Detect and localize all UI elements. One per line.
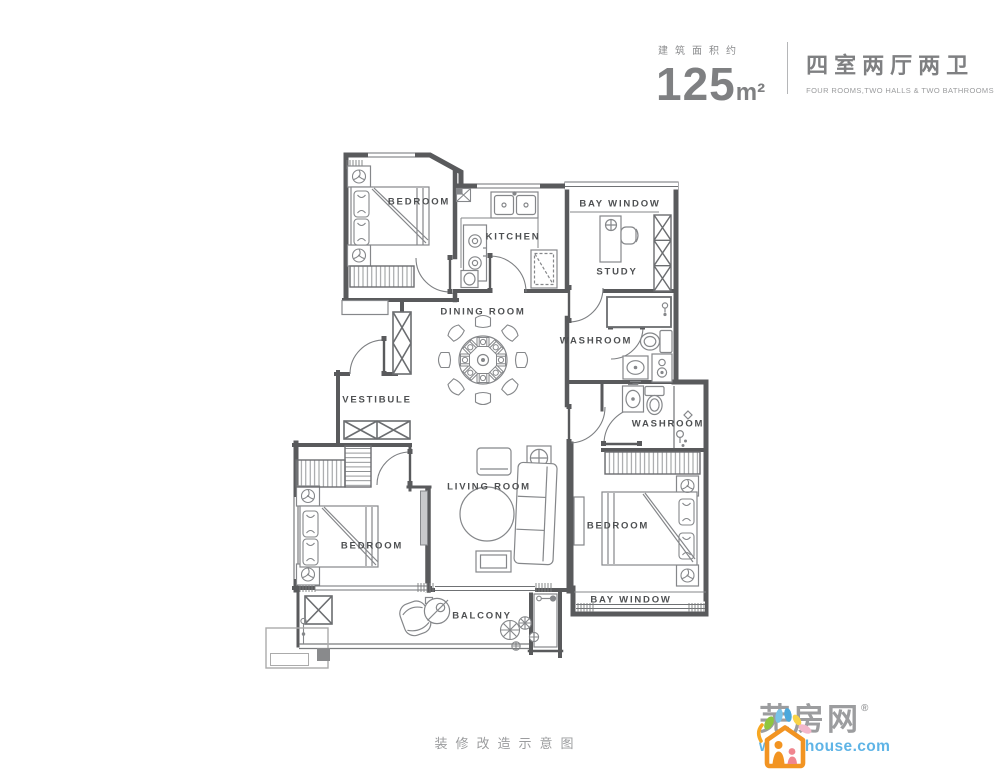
room-label-study: STUDY bbox=[596, 267, 637, 278]
plan-title-en: FOUR ROOMS,TWO HALLS & TWO BATHROOMS bbox=[806, 86, 994, 95]
vanity-sink-icon bbox=[623, 356, 648, 384]
area-value: 125 bbox=[656, 58, 736, 110]
room-label-vestibule: VESTIBULE bbox=[342, 395, 412, 406]
vanity-sink-icon bbox=[623, 385, 644, 413]
room-label-dining-room: DINING ROOM bbox=[440, 307, 525, 318]
plan-title-cn: 四室两厅两卫 bbox=[806, 48, 994, 80]
registered-mark: ® bbox=[861, 703, 868, 714]
storage-box-icon bbox=[305, 596, 332, 624]
wardrobe-icon bbox=[296, 446, 371, 487]
header-divider bbox=[787, 42, 788, 94]
flue-icon bbox=[457, 189, 471, 202]
double-bed-icon bbox=[348, 166, 430, 266]
sofa-icon bbox=[514, 462, 557, 565]
footer-caption: 装修改造示意图 bbox=[434, 733, 581, 752]
room-label-living-room: LIVING ROOM bbox=[447, 482, 531, 493]
floor-plan-canvas bbox=[0, 0, 1000, 782]
washing-machine-icon bbox=[652, 354, 672, 382]
armchair-icon bbox=[477, 448, 511, 475]
area-block: 建筑面积约 125m² bbox=[656, 40, 765, 107]
house-logo-icon bbox=[754, 704, 816, 770]
mop-basin-icon bbox=[461, 271, 478, 288]
floor-plan-page: BEDROOM KITCHEN BAY WINDOW STUDY DINING … bbox=[0, 0, 1000, 782]
toilet-icon bbox=[641, 331, 673, 353]
brand-logo: 芜房网® wh.ahhouse.com bbox=[754, 704, 890, 756]
area-value-row: 125m² bbox=[656, 61, 765, 107]
header: 建筑面积约 125m² 四室两厅两卫 FOUR ROOMS,TWO HALLS … bbox=[656, 40, 994, 107]
rug-icon bbox=[460, 487, 514, 541]
double-bed-icon bbox=[297, 486, 379, 585]
area-unit: m² bbox=[736, 79, 765, 106]
washing-machine-icon bbox=[424, 598, 449, 624]
room-label-bay-window-bottom: BAY WINDOW bbox=[590, 595, 671, 606]
title-block: 四室两厅两卫 FOUR ROOMS,TWO HALLS & TWO BATHRO… bbox=[806, 40, 994, 107]
wardrobe-icon bbox=[605, 452, 700, 474]
fridge-icon bbox=[531, 250, 557, 288]
tv-icon bbox=[421, 491, 428, 545]
room-label-bedroom-bottom-left: BEDROOM bbox=[341, 541, 403, 552]
shower-icon bbox=[674, 386, 692, 448]
kitchen-sink-icon bbox=[491, 192, 538, 218]
room-label-bedroom-bottom-right: BEDROOM bbox=[587, 521, 649, 532]
balcony-railing bbox=[299, 644, 529, 649]
room-label-bedroom-top-left: BEDROOM bbox=[388, 197, 450, 208]
room-label-washroom-2: WASHROOM bbox=[632, 419, 704, 430]
shoe-cabinet-icon bbox=[344, 312, 411, 439]
area-label: 建筑面积约 bbox=[658, 42, 765, 57]
drain-pipe-icon bbox=[301, 618, 306, 644]
room-label-washroom-1: WASHROOM bbox=[560, 336, 632, 347]
room-label-bay-window-top: BAY WINDOW bbox=[579, 199, 660, 210]
toilet-icon bbox=[645, 387, 664, 415]
room-label-kitchen: KITCHEN bbox=[486, 232, 541, 243]
room-label-balcony: BALCONY bbox=[452, 611, 512, 622]
shower-stall bbox=[607, 297, 671, 327]
desk-chair-icon bbox=[600, 216, 638, 262]
bookshelf-icon bbox=[654, 215, 671, 291]
coffee-table-icon bbox=[476, 551, 511, 572]
